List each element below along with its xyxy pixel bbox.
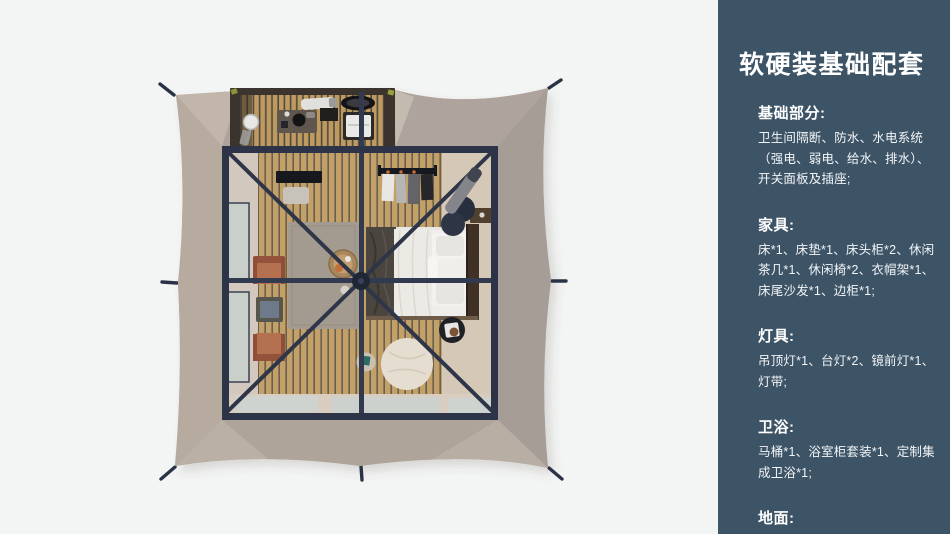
- section-line: 床尾沙发*1、边柜*1;: [758, 281, 936, 302]
- section-line: 卫生间隔断、防水、水电系统: [758, 128, 936, 149]
- section-line: （强电、弱电、给水、排水）、: [758, 149, 936, 170]
- tent-floorplan: [0, 0, 718, 534]
- section-line: 茶几*1、休闲椅*2、衣帽架*1、: [758, 260, 936, 281]
- section-heading: 卫浴:: [758, 416, 936, 437]
- info-panel: 软硬装基础配套 基础部分: 卫生间隔断、防水、水电系统 （强电、弱电、给水、排水…: [718, 0, 950, 534]
- window-left-lower: [227, 292, 249, 382]
- section-heading: 基础部分:: [758, 102, 936, 123]
- chair-side-table: [256, 297, 283, 322]
- section-line: 马桶*1、浴室柜套装*1、定制集: [758, 442, 936, 463]
- lounge-chair-2: [253, 333, 285, 361]
- bathroom: [230, 88, 395, 150]
- window-bottom-left: [236, 396, 318, 412]
- section-line: 成卫浴*1;: [758, 463, 936, 484]
- section-basics: 基础部分: 卫生间隔断、防水、水电系统 （强电、弱电、给水、排水）、 开关面板及…: [758, 102, 936, 190]
- toilet: [341, 96, 375, 111]
- window-bottom-center: [332, 397, 440, 414]
- pouf-2: [441, 212, 465, 236]
- section-heading: 地面:: [758, 507, 936, 528]
- tv-console: [276, 171, 322, 183]
- section-line: 吊顶灯*1、台灯*2、镜前灯*1、: [758, 351, 936, 372]
- section-furniture: 家具: 床*1、床垫*1、床头柜*2、休闲 茶几*1、休闲椅*2、衣帽架*1、 …: [758, 214, 936, 302]
- headboard: [468, 224, 479, 320]
- shower-tray: [343, 112, 374, 140]
- section-flooring: 地面: 强化木地板、卫生间防滑防潮石 塑板;: [758, 507, 936, 534]
- section-line: 床*1、床垫*1、床头柜*2、休闲: [758, 240, 936, 261]
- section-heading: 家具:: [758, 214, 936, 235]
- floorplan-area: [0, 0, 718, 534]
- section-bathroom: 卫浴: 马桶*1、浴室柜套装*1、定制集 成卫浴*1;: [758, 416, 936, 483]
- section-line: 灯带;: [758, 372, 936, 393]
- section-lighting: 灯具: 吊顶灯*1、台灯*2、镜前灯*1、 灯带;: [758, 325, 936, 392]
- section-heading: 灯具:: [758, 325, 936, 346]
- black-side-table: [439, 317, 465, 343]
- panel-sections: 基础部分: 卫生间隔断、防水、水电系统 （强电、弱电、给水、排水）、 开关面板及…: [758, 102, 936, 534]
- panel-title: 软硬装基础配套: [739, 45, 936, 81]
- slide: 软硬装基础配套 基础部分: 卫生间隔断、防水、水电系统 （强电、弱电、给水、排水…: [0, 0, 950, 534]
- table-lamp: [479, 212, 484, 217]
- section-line: 开关面板及插座;: [758, 169, 936, 190]
- window-left-upper: [227, 203, 249, 279]
- bench: [283, 187, 309, 204]
